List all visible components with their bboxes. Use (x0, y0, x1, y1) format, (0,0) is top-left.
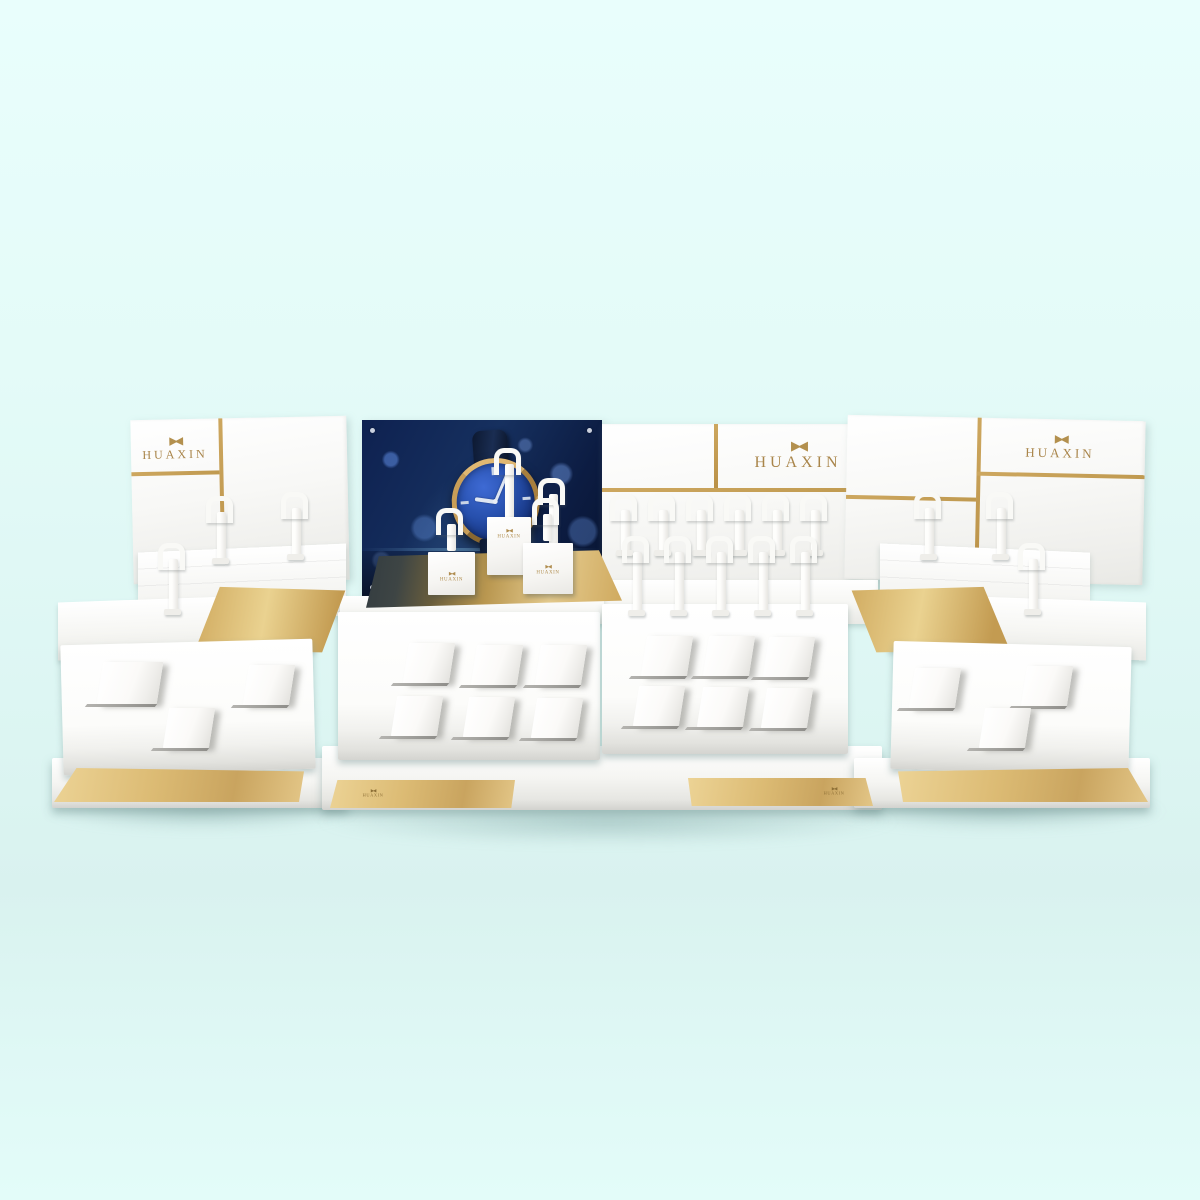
watch-hook-stand (206, 496, 234, 564)
wedge-face (763, 637, 815, 677)
wedge-face (403, 643, 455, 683)
hook-curve (706, 536, 733, 563)
left-panel-brand: ▶◀ HUAXIN (137, 435, 214, 462)
display-wedge (692, 687, 752, 731)
cube-hook-stand (436, 508, 464, 556)
left-base-gold-strip (54, 768, 304, 802)
watch-hook-stand (281, 492, 309, 560)
right-panel-brand: ▶◀ HUAXIN (995, 432, 1126, 461)
hook-curve (494, 448, 521, 475)
hook-curve (686, 494, 713, 521)
display-wedge (158, 708, 218, 752)
display-wedge (758, 637, 818, 681)
hook-curve (790, 536, 817, 563)
watch-hook-stand (914, 492, 942, 560)
wedge-face (1021, 666, 1073, 706)
display-wedge (698, 636, 758, 680)
wedge-face (243, 665, 295, 705)
display-wedge (628, 686, 688, 730)
huaxin-logo-icon: ▶◀ (995, 432, 1125, 446)
display-wedge (974, 708, 1034, 752)
display-wedge (398, 643, 458, 687)
hook-foot (628, 610, 645, 616)
hook-curve (281, 492, 308, 519)
display-wedge (530, 645, 590, 689)
wedge-baseline (379, 736, 437, 739)
gold-line-horizontal (131, 470, 219, 476)
wedge-face (163, 708, 215, 748)
logo-cube-block: ▶◀HUAXIN (428, 552, 475, 595)
huaxin-logo-icon: ▶◀ (137, 435, 213, 448)
hook-foot (920, 554, 937, 560)
left-panel-brand-word: HUAXIN (137, 448, 213, 462)
wedge-baseline (459, 685, 517, 688)
wedge-face (535, 645, 587, 685)
hook-foot (1024, 609, 1041, 615)
cube-hook-stand (532, 498, 560, 546)
product-render-stage: ▶◀ HUAXIN (0, 0, 1200, 1200)
poster-screw (587, 428, 592, 433)
display-wedge (1016, 666, 1076, 710)
display-wedge (636, 636, 696, 680)
wedge-face (391, 696, 443, 736)
wedge-baseline (691, 676, 749, 679)
wedge-baseline (621, 726, 679, 729)
cube-brand-word: HUAXIN (495, 534, 522, 539)
huaxin-logo-icon: ▶◀ (730, 440, 866, 453)
display-wedge (238, 665, 298, 709)
cube-brand: ▶◀HUAXIN (495, 528, 522, 539)
strip-brand: ▶◀HUAXIN (820, 787, 848, 796)
hook-curve (532, 498, 559, 525)
watch-hook-stand (158, 543, 186, 615)
hook-foot (287, 554, 304, 560)
wedge-baseline (451, 737, 509, 740)
wedge-baseline (391, 683, 449, 686)
cube-brand-word: HUAXIN (533, 570, 564, 575)
hook-curve (206, 496, 233, 523)
wedge-face (463, 697, 515, 737)
watch-hook-stand (790, 536, 818, 616)
display-wedge (458, 697, 518, 741)
wedge-baseline (967, 748, 1025, 751)
display-wedge (386, 696, 446, 740)
center-base-gold-strip-left: ▶◀HUAXIN (330, 780, 515, 808)
display-wedge (904, 668, 964, 712)
display-wedge (756, 688, 816, 732)
wedge-face (633, 686, 685, 726)
watch-hook-stand (706, 536, 734, 616)
hook-foot (212, 558, 229, 564)
hook-foot (670, 610, 687, 616)
cube-brand-word: HUAXIN (437, 577, 466, 582)
hook-foot (796, 610, 813, 616)
hook-curve (914, 492, 941, 519)
hook-curve (610, 494, 637, 521)
wedge-face (761, 688, 813, 728)
display-wedge (466, 645, 526, 689)
wedge-baseline (519, 738, 577, 741)
gold-line-horizontal (602, 488, 878, 492)
gold-line-horizontal (846, 495, 976, 502)
poster-screw (370, 428, 375, 433)
watch-hook-stand (622, 536, 650, 616)
dial-tick-9 (461, 501, 469, 505)
wedge-baseline (85, 704, 157, 707)
hook-curve (748, 536, 775, 563)
wedge-face (909, 668, 961, 708)
display-wedge (92, 662, 170, 708)
center-base-gold-strip-right: ▶◀HUAXIN (688, 778, 873, 806)
cube-brand: ▶◀HUAXIN (533, 564, 564, 575)
hook-curve (762, 494, 789, 521)
wedge-baseline (897, 708, 955, 711)
hook-curve (158, 543, 185, 570)
gold-line-vertical (714, 424, 718, 490)
hook-curve (1018, 543, 1045, 570)
right-panel-brand-word: HUAXIN (995, 445, 1125, 461)
hook-foot (754, 610, 771, 616)
watch-hook-stand (1018, 543, 1046, 615)
wedge-baseline (523, 685, 581, 688)
wedge-baseline (749, 728, 807, 731)
wedge-baseline (685, 727, 743, 730)
logo-cube-block: ▶◀HUAXIN (523, 543, 573, 594)
wedge-face (97, 662, 164, 704)
wedge-face (697, 687, 749, 727)
watch-hook-stand (664, 536, 692, 616)
hook-curve (724, 494, 751, 521)
wedge-baseline (151, 748, 209, 751)
hook-foot (164, 609, 181, 615)
display-wedge (526, 698, 586, 742)
hook-curve (648, 494, 675, 521)
watch-hook-stand (748, 536, 776, 616)
center-panel-brand-word: HUAXIN (730, 455, 866, 471)
right-base-gold-strip (898, 768, 1148, 802)
strip-brand-word: HUAXIN (820, 791, 848, 795)
center-panel-brand: ▶◀ HUAXIN (730, 440, 866, 471)
cube-brand: ▶◀HUAXIN (437, 571, 466, 582)
hook-curve (986, 492, 1013, 519)
gold-line-horizontal (977, 472, 1145, 480)
hook-curve (436, 508, 463, 535)
wedge-baseline (629, 676, 687, 679)
hook-curve (664, 536, 691, 563)
hook-curve (622, 536, 649, 563)
wedge-baseline (231, 705, 289, 708)
wedge-face (471, 645, 523, 685)
strip-brand-word: HUAXIN (359, 793, 387, 797)
hook-curve (800, 494, 827, 521)
wedge-face (703, 636, 755, 676)
wedge-face (531, 698, 583, 738)
watch-hook-stand (986, 492, 1014, 560)
hook-foot (992, 554, 1009, 560)
wedge-face (979, 708, 1031, 748)
hook-foot (712, 610, 729, 616)
strip-brand: ▶◀HUAXIN (359, 789, 387, 798)
wedge-baseline (751, 677, 809, 680)
dial-tick-3 (522, 497, 530, 501)
wedge-face (641, 636, 693, 676)
